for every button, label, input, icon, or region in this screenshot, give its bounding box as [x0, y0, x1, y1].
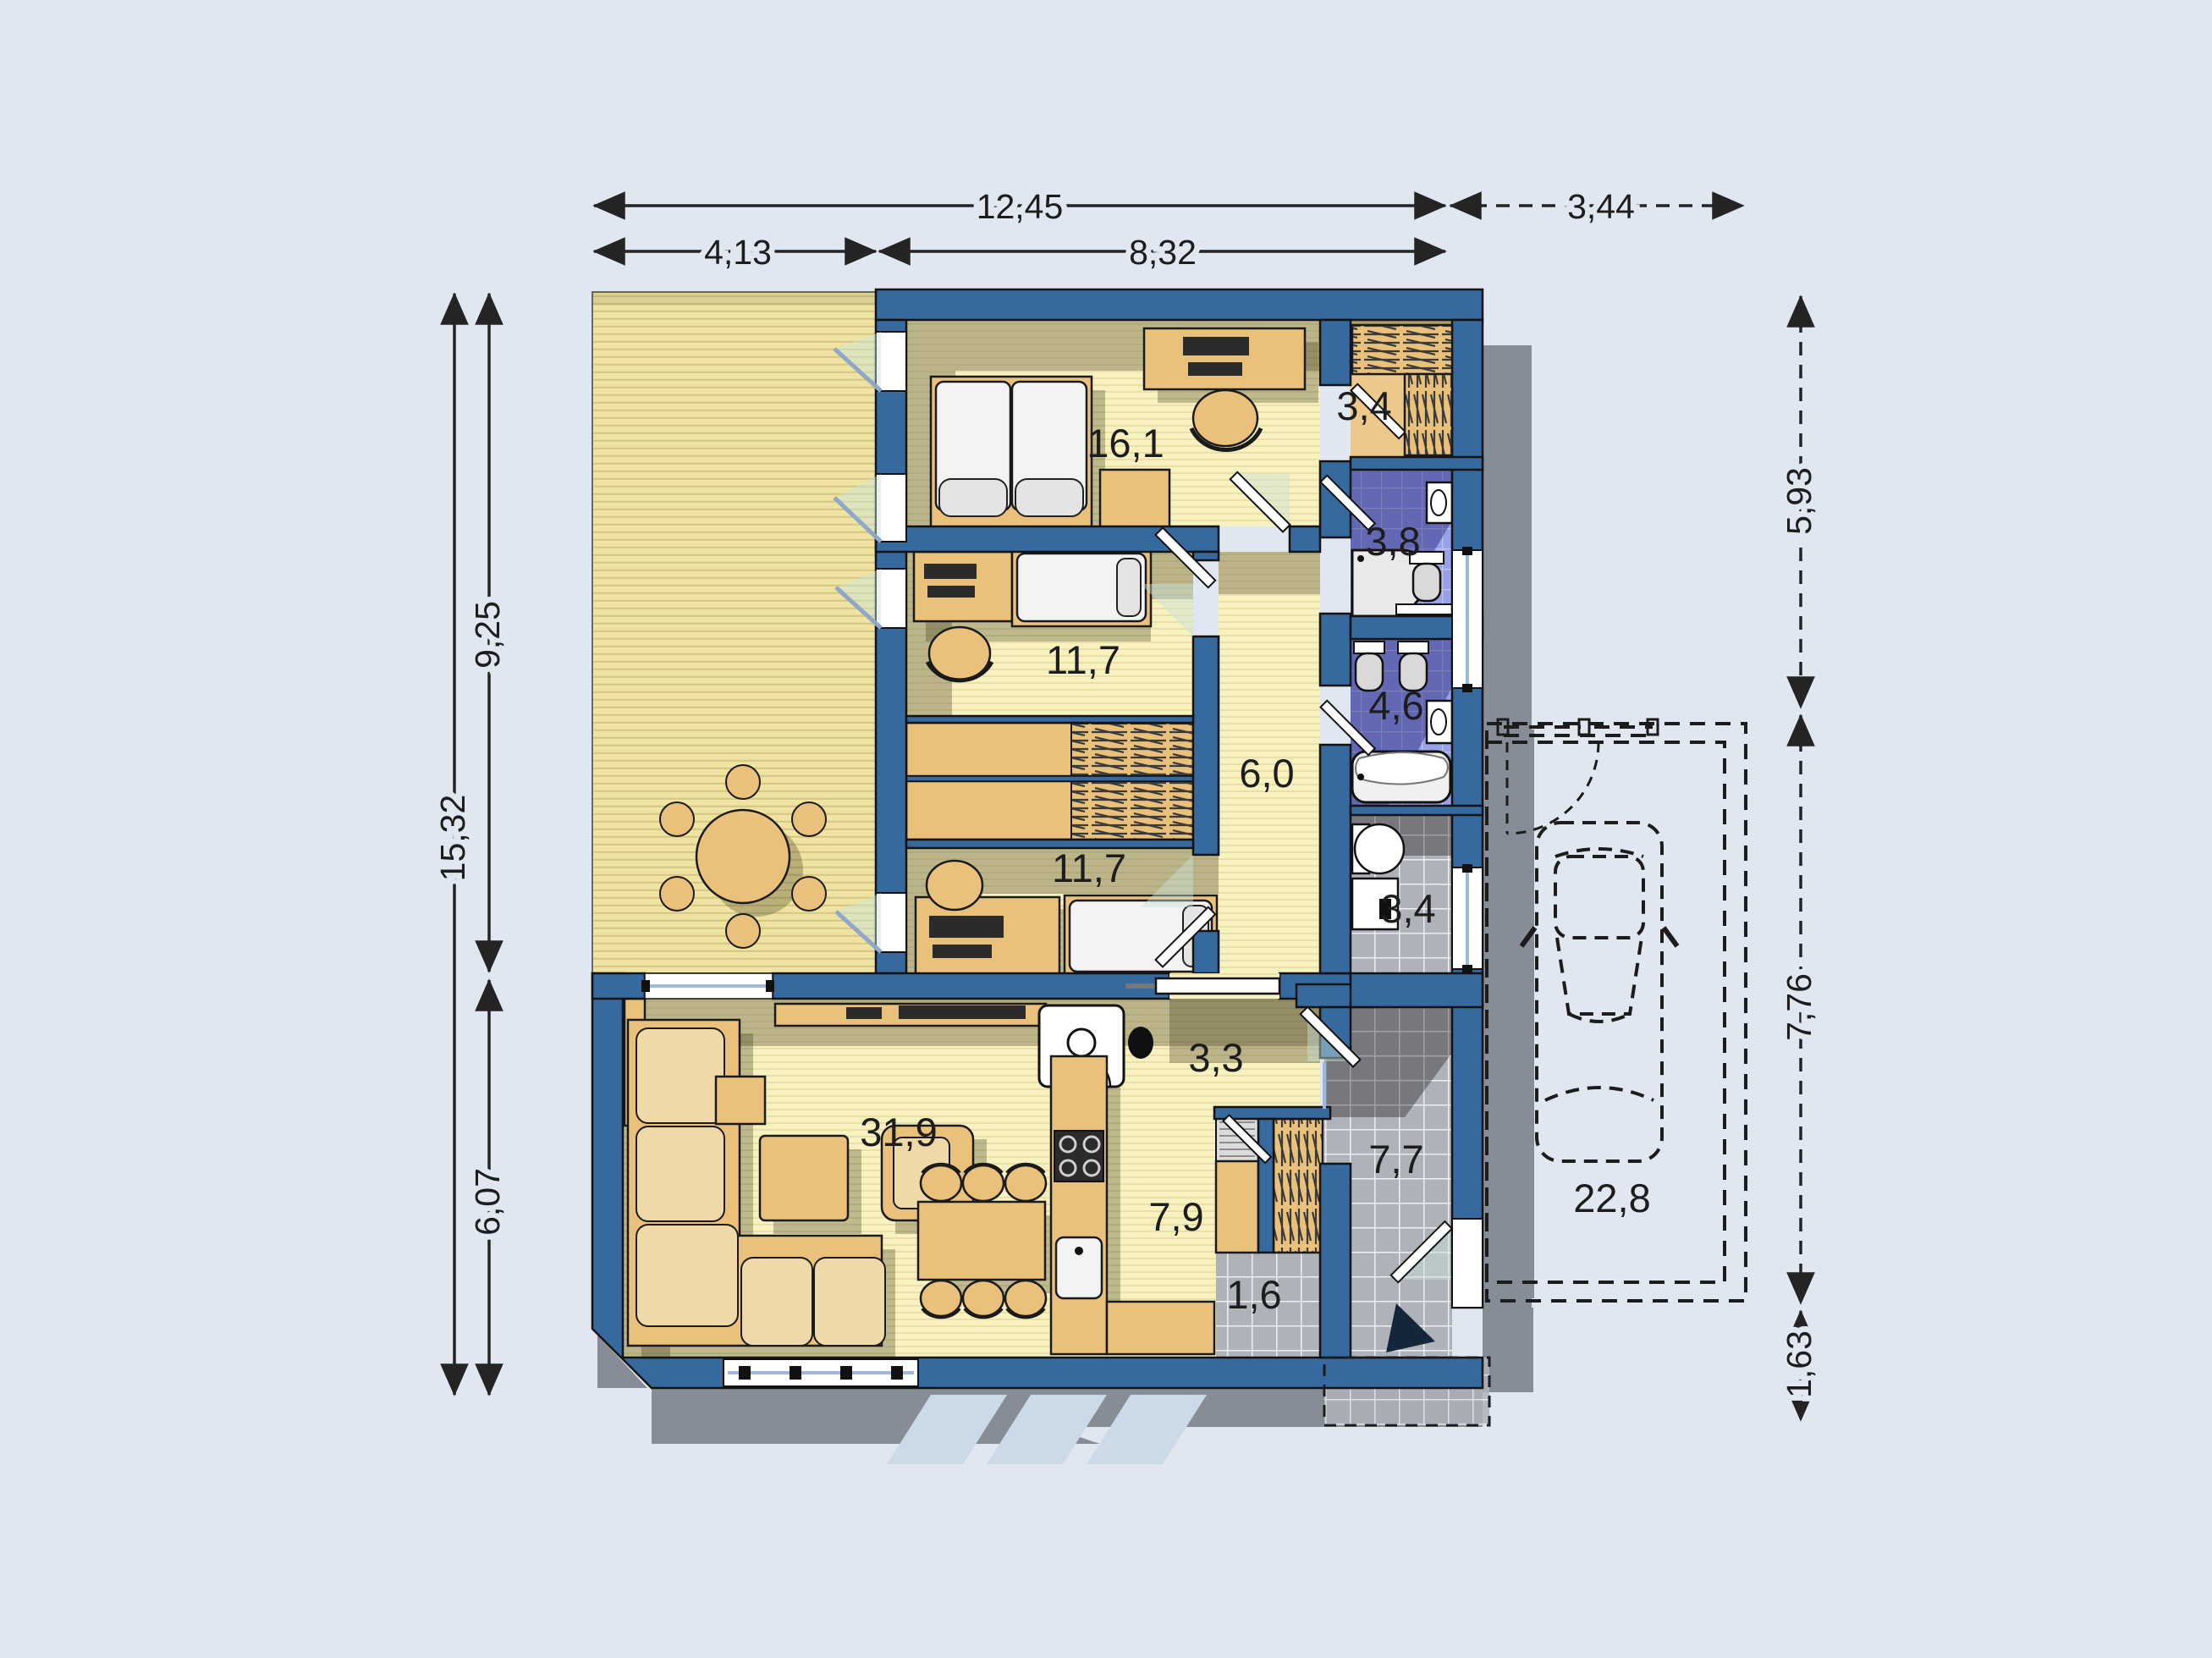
wardrobe-row-top-hangers	[1071, 723, 1193, 776]
toilet-bowl	[1413, 564, 1440, 601]
label-utility: 3,4	[1380, 886, 1435, 931]
keyboard-1	[1188, 362, 1242, 376]
dim-terrace-width: 4,13	[704, 233, 772, 272]
label-bedroom-1: 16,1	[1087, 421, 1164, 465]
pillow-2	[1117, 559, 1141, 616]
side-table	[716, 1077, 765, 1124]
dining-table	[918, 1202, 1045, 1280]
pillow-right	[1015, 479, 1083, 516]
label-living-room: 31,9	[860, 1110, 937, 1154]
coffee-table	[760, 1136, 848, 1220]
floor-plan-canvas: 16,1 3,4 3,8 11,7 4,6 6,0 11,7 3,4 3,3 3…	[0, 0, 2212, 1658]
terrace-glass-door	[641, 973, 774, 999]
dim-carport-depth: 7,76	[1780, 973, 1819, 1041]
desk-chair-3	[927, 861, 982, 910]
pantry-cabinet	[1216, 1161, 1258, 1253]
stove-pipe	[1128, 1027, 1153, 1059]
wardrobe-units	[906, 723, 1193, 840]
bathtub-inner	[1356, 752, 1448, 785]
monitor-3	[929, 916, 1004, 938]
tv	[899, 1005, 1026, 1019]
wall-corridor-west	[1193, 636, 1219, 855]
label-entry: 7,7	[1368, 1137, 1423, 1182]
patio-walkway-slabs	[887, 1395, 1207, 1464]
wall-divider	[773, 973, 1169, 999]
keyboard-3	[933, 945, 992, 958]
wall-west-house	[876, 320, 906, 973]
label-wc: 4,6	[1368, 683, 1423, 728]
dim-porch-depth: 1,63	[1780, 1330, 1819, 1398]
dim-upper-depth: 9,25	[468, 601, 507, 669]
dim-house-width: 8,32	[1129, 233, 1197, 272]
desk-chair-1	[1193, 390, 1257, 446]
label-wardrobe-closet: 3,4	[1336, 383, 1391, 428]
wall-zone-east-1	[1320, 320, 1351, 385]
dim-north-wing-depth: 5,93	[1780, 467, 1819, 535]
round-table	[696, 810, 790, 903]
wall-top	[876, 289, 1483, 320]
label-closet-hall: 6,0	[1239, 751, 1294, 796]
label-hallway: 3,3	[1188, 1035, 1243, 1080]
dim-overall-depth: 15,32	[433, 795, 472, 882]
label-garage: 22,8	[1573, 1176, 1650, 1220]
pillow-left	[939, 479, 1007, 516]
wall-closet-bath	[1351, 457, 1483, 470]
label-bathroom: 3,8	[1365, 519, 1420, 564]
car	[1521, 823, 1677, 1161]
patio-sliding-door	[724, 1359, 918, 1386]
label-kitchen: 7,9	[1148, 1194, 1203, 1239]
keyboard-2	[927, 586, 975, 598]
kitchen-sink	[1056, 1237, 1102, 1298]
monitor-2	[924, 564, 977, 579]
wall-utility-entry	[1351, 973, 1483, 1007]
water-heater	[1355, 824, 1404, 873]
wall-wc-utility	[1351, 806, 1483, 815]
dim-overall-width: 12,45	[977, 187, 1064, 226]
wardrobe-row-bottom-hangers	[1071, 781, 1193, 840]
dim-carport-width: 3,44	[1567, 187, 1635, 226]
label-bedroom-3: 11,7	[1052, 846, 1126, 890]
label-pantry: 1,6	[1226, 1272, 1281, 1317]
label-bedroom-2: 11,7	[1046, 637, 1120, 682]
monitor-1	[1183, 337, 1249, 355]
kitchen-counter-bottom	[1107, 1302, 1214, 1354]
dim-living-depth: 6,07	[468, 1168, 507, 1236]
bedside-table	[1100, 470, 1169, 527]
floor-plan-svg: 16,1 3,4 3,8 11,7 4,6 6,0 11,7 3,4 3,3 3…	[0, 0, 2212, 1658]
kitchen-counter	[1051, 1056, 1107, 1354]
